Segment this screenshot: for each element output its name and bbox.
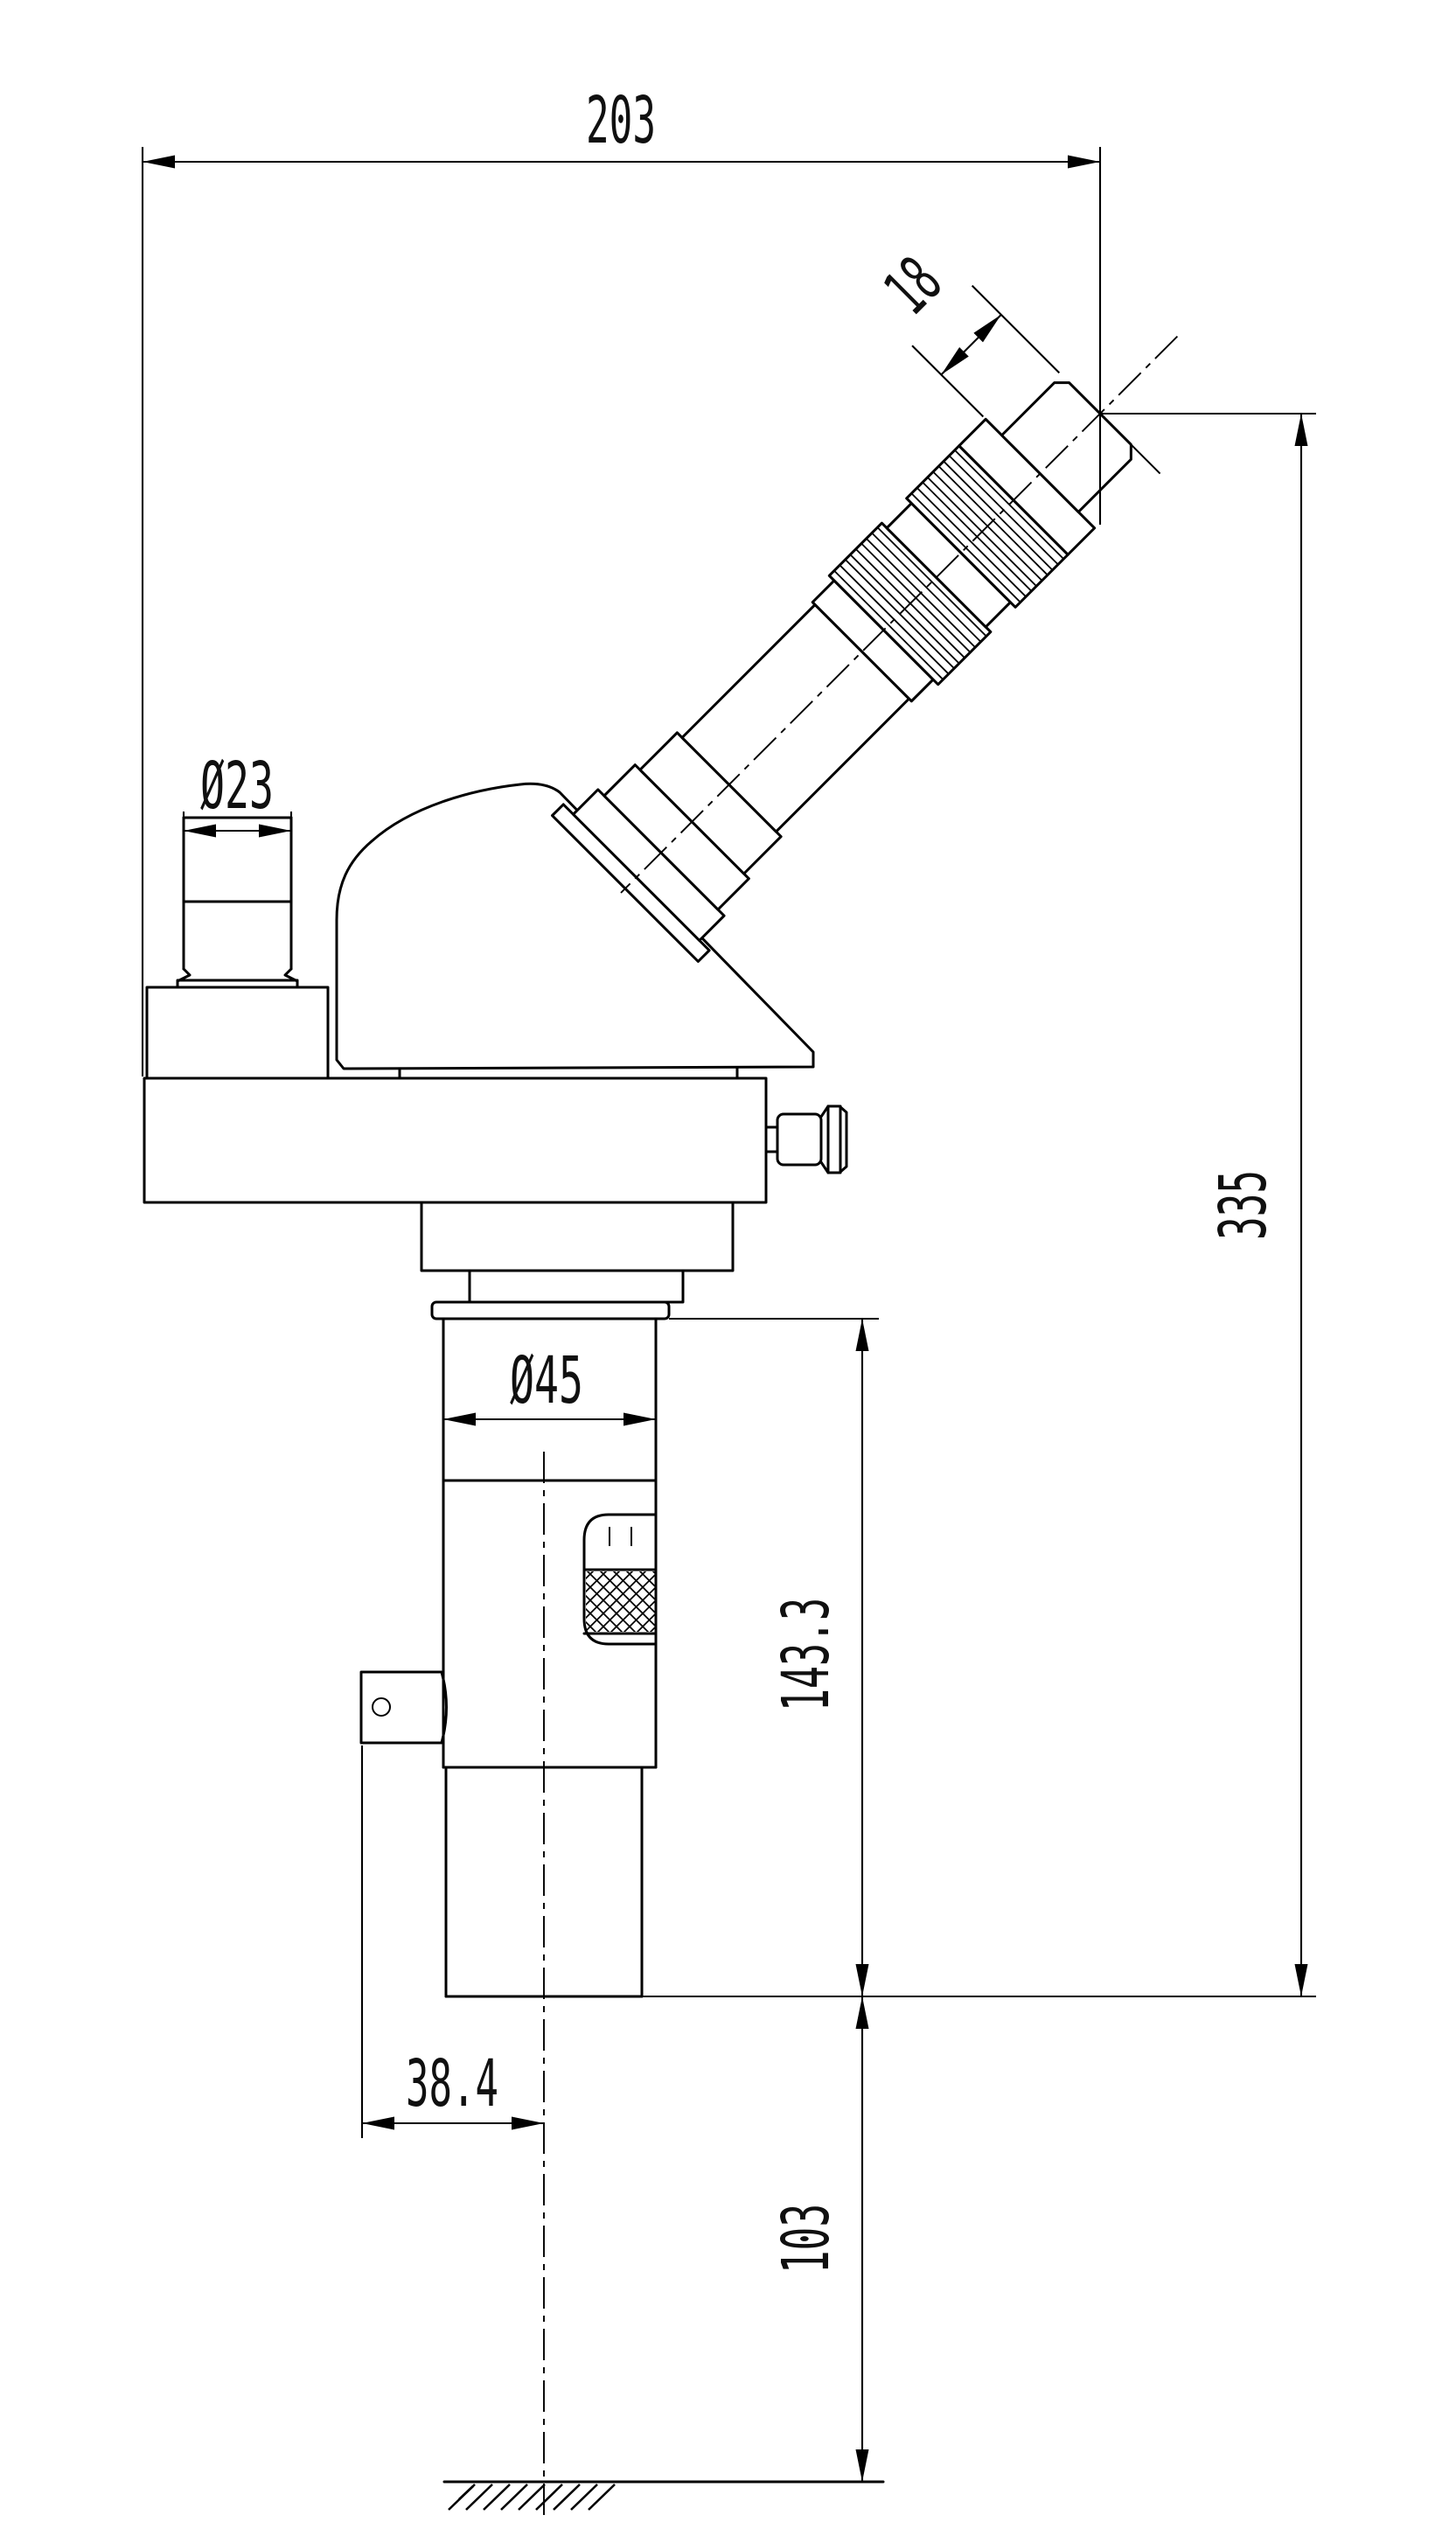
dim-label-143-3: 143.3 <box>769 1598 844 1711</box>
microscope-body-outline: 18 <box>144 153 1250 2510</box>
side-knob <box>766 1106 846 1173</box>
dim-label-38-4: 38.4 <box>406 2046 498 2121</box>
dim-label-18: 18 <box>871 244 957 330</box>
ground-plane <box>444 2482 883 2510</box>
eyepiece-assembly: 18 <box>437 153 1250 966</box>
dim-label-d45: Ø45 <box>510 1343 583 1418</box>
dimension-photo-port: Ø23 <box>184 749 291 838</box>
dimension-eyepiece-end: 18 <box>856 230 1059 433</box>
knurled-grip <box>586 1571 655 1632</box>
base-plate <box>144 1078 766 1202</box>
dimension-axis-offset: 38.4 <box>362 1745 544 2138</box>
dim-label-203: 203 <box>586 83 656 158</box>
dimension-clearance-height: 103 <box>769 1996 869 2482</box>
dim-label-103: 103 <box>769 2204 844 2274</box>
drawing-sheet: 18 203 Ø23 Ø45 <box>0 0 1456 2529</box>
dimension-tube-length: 143.3 <box>669 1319 879 1996</box>
dim-label-335: 335 <box>1206 1170 1281 1240</box>
clamp-screw-hole <box>373 1698 390 1716</box>
dim-label-d23: Ø23 <box>200 749 274 824</box>
neck-steps <box>421 1202 733 1319</box>
focus-ring <box>584 1515 656 1644</box>
photo-port <box>147 818 328 1078</box>
dimensions: 203 Ø23 Ø45 335 <box>143 83 1316 2482</box>
dimension-mount-tube: Ø45 <box>443 1343 656 1426</box>
clamp-block <box>361 1672 447 1743</box>
drawing-canvas: 18 203 Ø23 Ø45 <box>0 0 1456 2529</box>
